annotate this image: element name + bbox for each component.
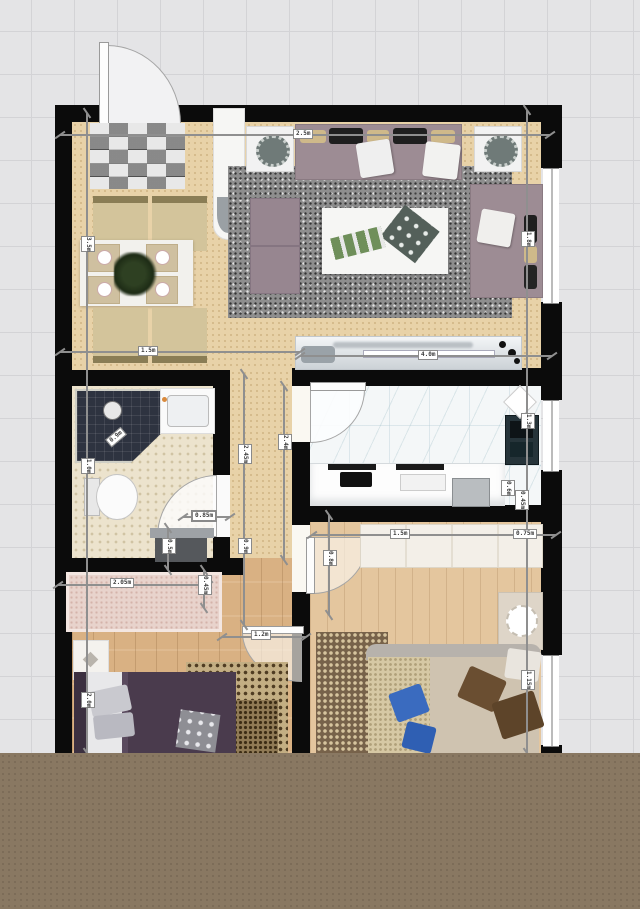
shower-drain (103, 401, 122, 420)
dim-label-bed2-top-a: 1.5m (390, 529, 410, 539)
pillow-gray (93, 712, 135, 740)
upper-cabinet-edge (396, 464, 444, 470)
entrance-door-leaf[interactable] (99, 42, 109, 124)
coffee-table[interactable] (322, 208, 448, 274)
pillow-white (422, 141, 461, 180)
wall-left (55, 105, 72, 753)
bedside-table-2[interactable] (498, 592, 543, 650)
dim-label-top: 2.5m (293, 129, 313, 139)
dim-label-bed1-door: 1.2m (251, 630, 271, 640)
tray (380, 205, 439, 264)
knob (514, 358, 520, 364)
wall-bathroom-right-b (213, 537, 230, 558)
wall-right-3 (541, 470, 562, 655)
sofa[interactable] (295, 124, 462, 180)
dining-chair-4[interactable] (152, 308, 207, 363)
dim-label-left-mid: 1.0m (81, 458, 95, 474)
pillow-white (476, 208, 515, 247)
bolster-black (329, 128, 363, 144)
wall-right-1 (541, 122, 562, 168)
round-dish (506, 605, 538, 637)
bolster-black (393, 128, 427, 144)
toilet[interactable] (84, 472, 136, 520)
dim-line-right (526, 110, 528, 753)
armchair-1[interactable] (250, 198, 300, 246)
dim-label-right-mid: 1.3m (521, 413, 535, 429)
dim-label-wardrobe-width: 2.05m (110, 578, 134, 588)
toilet-bowl (96, 474, 138, 520)
decor-disc (256, 135, 290, 167)
wall-bathroom-right-a (213, 386, 230, 475)
table-plant (114, 252, 158, 296)
dim-line-hall-b (283, 386, 285, 560)
dining-table[interactable] (80, 240, 193, 306)
bath-sink[interactable] (160, 388, 215, 434)
cabinet-panel (510, 442, 533, 457)
knob (499, 341, 506, 348)
dim-line-hall-a (243, 374, 245, 625)
dim-label-kitchen-cab-b: 0.45m (515, 490, 529, 510)
dim-label-desk-depth: 0.5m (162, 538, 176, 554)
kitchen-door-gap (292, 386, 310, 442)
kitchen-counter[interactable] (310, 463, 505, 506)
window-living (543, 168, 559, 304)
dim-label-hall-a: 2.45m (238, 444, 252, 464)
bed-1[interactable] (74, 672, 236, 753)
dim-label-dining: 1.5m (138, 346, 158, 356)
sink-basin (167, 395, 209, 427)
bar-counter[interactable] (295, 336, 522, 370)
soap (162, 397, 167, 402)
dim-label-right-lower: 1.15m (521, 670, 535, 690)
wall-bathroom-top (55, 370, 230, 386)
upper-cabinet-edge (328, 464, 376, 470)
dim-line-dining (60, 351, 300, 353)
pillow-white (355, 139, 394, 179)
window-kitchen (543, 400, 559, 472)
wall-central-a (292, 442, 310, 525)
window-bedroom-2 (543, 655, 559, 747)
cooktop (340, 472, 372, 487)
dim-label-right-upper: 1.8m (521, 231, 535, 247)
side-table-right[interactable] (474, 126, 522, 172)
entrance-door-swing[interactable] (107, 45, 181, 124)
dim-label-left-upper: 3.5m (81, 236, 95, 252)
books (330, 226, 386, 260)
dim-line-left (86, 113, 88, 753)
bottom-panel (0, 753, 640, 909)
dim-label-bath-door: 0.85m (191, 510, 217, 522)
kitchen-door-leaf[interactable] (310, 382, 366, 391)
dim-label-bed2-door: 0.8m (323, 550, 337, 566)
dim-label-wardrobe-depth: 0.45m (198, 575, 212, 595)
dim-label-kitchen-cab-a: 0.6m (501, 480, 515, 496)
bed-2[interactable] (366, 644, 541, 753)
entry-doormat[interactable] (90, 123, 185, 189)
dim-label-hall-b: 0.9m (238, 538, 252, 554)
kitchen-sink (400, 474, 446, 491)
armchair-2[interactable] (250, 246, 300, 294)
dim-label-hall-c: 2.4m (278, 434, 292, 450)
decor-disc (484, 135, 518, 167)
bed-tray (176, 709, 221, 752)
dim-label-bed2-top-b: 0.75m (513, 529, 537, 539)
bath-cabinet[interactable] (150, 528, 214, 538)
dim-label-counter: 4.0m (418, 350, 438, 360)
side-table-left[interactable] (246, 126, 294, 172)
dishwasher (452, 478, 490, 507)
floor-plan-canvas[interactable]: 2.5m 1.5m 4.0m 3.5m 1.0m 2.0m 2.45m 0.9m… (0, 0, 640, 909)
dim-label-left-lower: 2.0m (81, 692, 95, 708)
counter-shadow (333, 342, 473, 348)
bedroom-2-door-leaf[interactable] (306, 537, 315, 594)
